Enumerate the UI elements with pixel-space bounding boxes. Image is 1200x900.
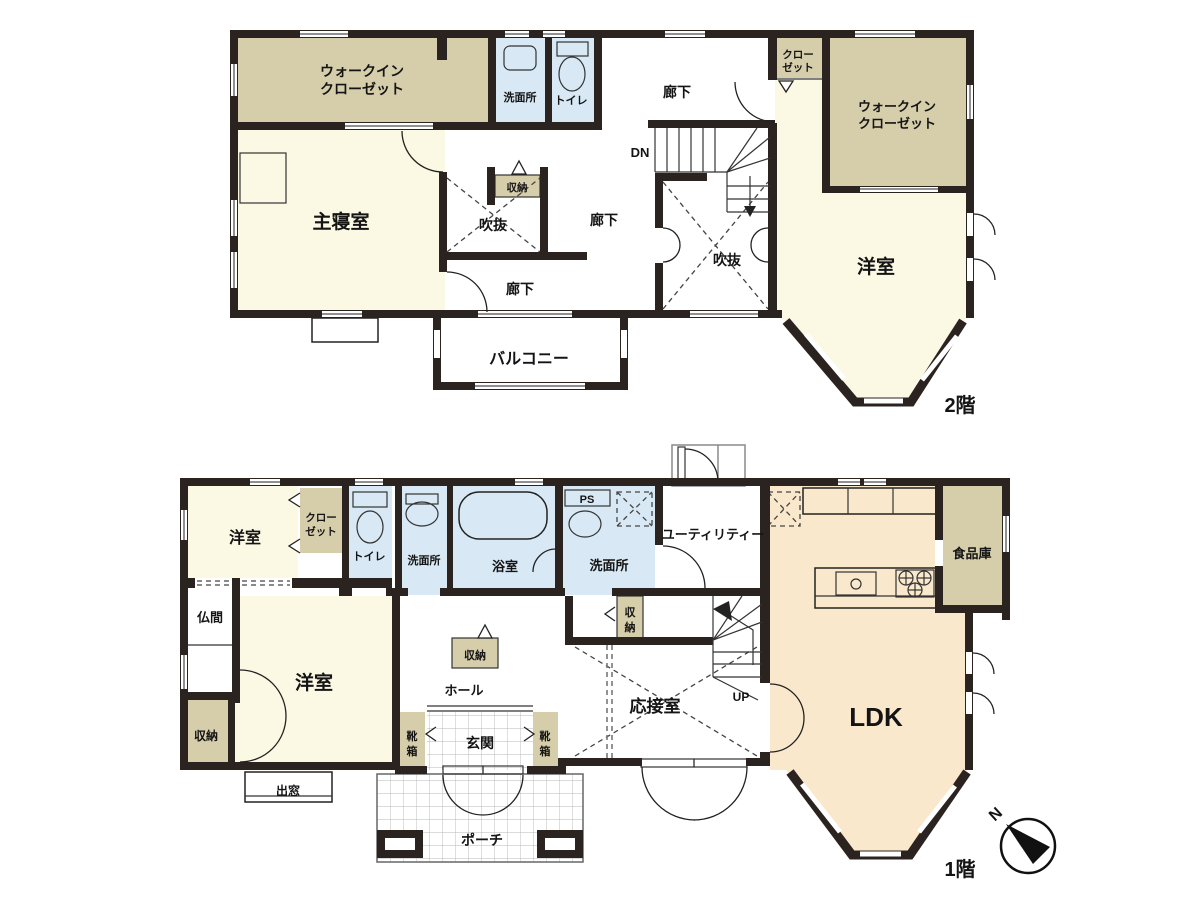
label-balcony: バルコニー [489,350,569,368]
label-storage-left: 収納 [194,728,218,743]
label-toilet-2f: トイレ [555,94,588,107]
floor-plan-page: ウォークイン クローゼット 洗面所 トイレ 廊下 クロー ゼット ウォークイン … [0,0,1200,900]
label-up: UP [733,690,750,704]
label-storage-mid-1: 収 [625,606,637,619]
label-toilet-1f: トイレ [353,550,386,563]
label-floor1: 1階 [944,858,975,881]
label-void-left: 吹抜 [479,217,508,233]
label-ps: PS [580,494,595,506]
floor-plan-image: ウォークイン クローゼット 洗面所 トイレ 廊下 クロー ゼット ウォークイン … [0,0,1200,900]
label-closet-2f-2: ゼット [782,61,814,74]
label-washroom-2f: 洗面所 [504,90,537,104]
label-closet-1f-1: クロー [305,512,337,524]
label-shoebox-left-1: 靴 [407,729,418,743]
label-ldk: LDK [849,702,903,732]
label-shoebox-right-2: 箱 [540,744,551,758]
bay-projection-2f [312,318,378,342]
label-shoebox-right-1: 靴 [540,729,551,743]
label-closet-1f-2: ゼット [305,525,337,538]
label-storage-2f: 収納 [507,181,528,194]
label-butsuma: 仏間 [197,610,223,625]
label-storage-hall: 収納 [464,648,486,662]
label-wic-right-1: ウォークイン [858,99,936,114]
label-hall: ホール [444,683,483,698]
storage-hall-pointer [478,625,492,638]
label-entrance: 玄関 [466,735,494,751]
label-washroom-left: 洗面所 [408,553,441,567]
label-corridor-top: 廊下 [663,84,691,100]
stairs-down-icon [655,128,770,217]
label-wic-left-1: ウォークイン [320,63,404,79]
label-bay-window: 出窓 [276,783,300,798]
label-utility: ユーティリティー [662,527,764,542]
label-pantry: 食品庫 [952,546,991,561]
label-bathroom: 浴室 [492,559,518,574]
label-wic-right-2: クローゼット [858,116,936,131]
storage-pointer-2f [512,161,526,174]
label-washroom-right: 洗面所 [589,558,628,573]
label-dn: DN [631,145,650,160]
first-floor: 洋室 クロー ゼット トイレ 洗面所 浴室 PS 洗面所 ユーティリティー 収 … [180,445,1010,881]
storage-mid-pointer [605,607,615,621]
label-wic-left-2: クローゼット [320,81,404,97]
label-shoebox-left-2: 箱 [407,744,418,758]
label-corridor-lower: 廊下 [506,281,534,297]
label-floor2: 2階 [944,394,975,417]
label-void-right: 吹抜 [713,252,742,268]
void-right-dashes [663,182,768,309]
label-corridor-mid: 廊下 [590,212,618,228]
label-porch: ポーチ [461,832,503,848]
label-western-room-2f: 洋室 [857,255,895,278]
label-reception: 応接室 [630,696,681,716]
compass-north-label: N [986,804,1006,824]
label-master-bedroom: 主寝室 [312,210,369,233]
label-closet-2f-1: クロー [782,49,814,61]
partition-dashes [607,645,612,758]
label-western-room-large: 洋室 [295,671,333,694]
label-western-room-small: 洋室 [229,528,261,547]
compass-icon: N [986,804,1055,873]
second-floor: ウォークイン クローゼット 洗面所 トイレ 廊下 クロー ゼット ウォークイン … [230,30,995,417]
label-storage-mid-2: 納 [625,620,636,634]
